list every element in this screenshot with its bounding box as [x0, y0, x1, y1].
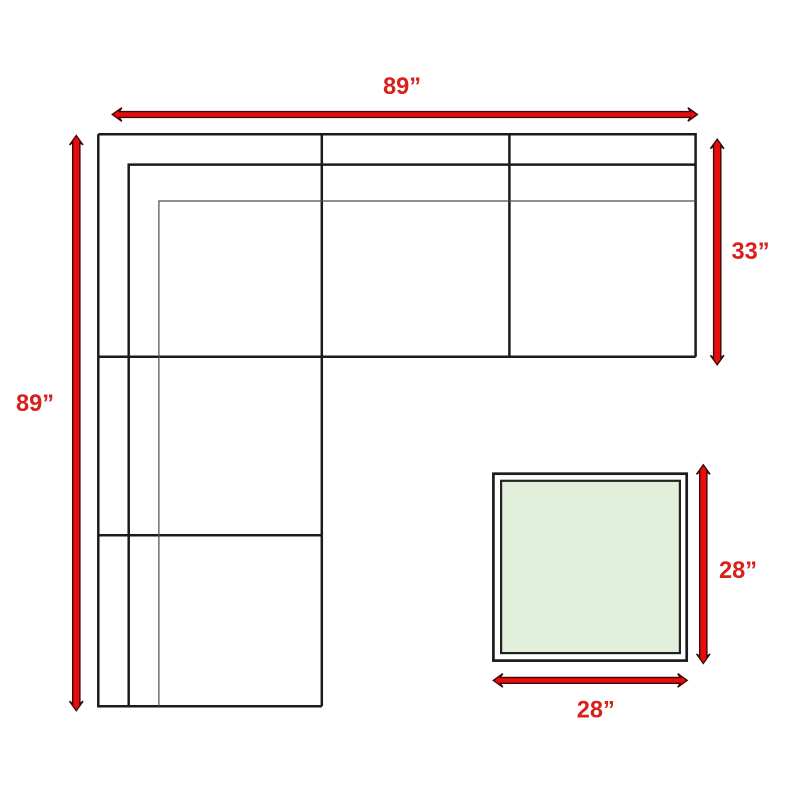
svg-text:89”: 89”: [383, 74, 421, 100]
svg-text:28”: 28”: [577, 698, 615, 724]
svg-text:33”: 33”: [731, 239, 769, 265]
svg-text:28”: 28”: [719, 558, 757, 584]
svg-text:89”: 89”: [16, 391, 54, 417]
